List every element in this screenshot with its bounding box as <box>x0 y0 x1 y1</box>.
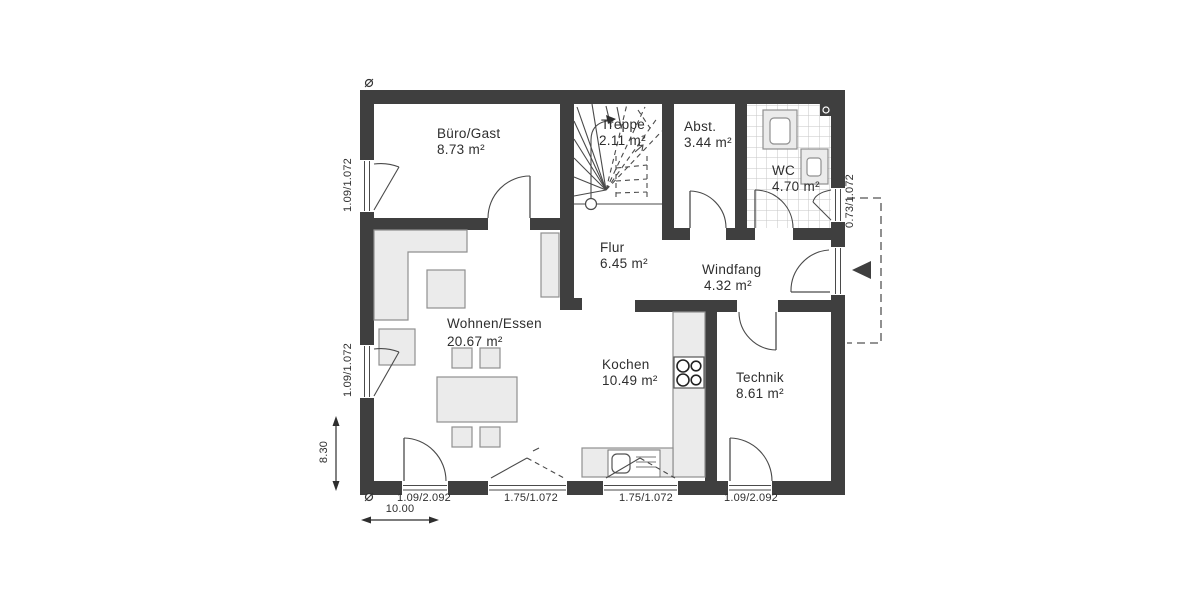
window-size-label: 0.73/1.072 <box>844 174 856 228</box>
room-area-wc: 4.70 m² <box>772 179 820 194</box>
kitchen-sink <box>608 450 660 477</box>
room-area-treppe: 2.11 m² <box>599 133 646 148</box>
door-size-label: 1.09/2.092 <box>397 492 451 504</box>
survey-point-icon <box>365 493 373 501</box>
coffee-table <box>427 270 465 308</box>
sideboard <box>541 233 559 297</box>
room-area-buero-gast: 8.73 m² <box>437 142 485 157</box>
chair <box>452 427 472 447</box>
room-label-buero-gast: Büro/Gast <box>437 126 500 141</box>
window-size-label: 1.75/1.072 <box>504 492 558 504</box>
chair <box>480 427 500 447</box>
room-area-flur: 6.45 m² <box>600 256 648 271</box>
kitchen-counter-vertical <box>673 312 705 477</box>
dining-table <box>437 377 517 422</box>
chair <box>480 348 500 368</box>
chair <box>452 348 472 368</box>
floor-plan-page: 8.30 10.00 1.09/1.072 1.09/1.072 0.73/1.… <box>0 0 1200 600</box>
dimension-width-label: 10.00 <box>386 503 415 515</box>
window-size-label: 1.09/1.072 <box>342 343 354 397</box>
window-size-label: 1.09/1.072 <box>342 158 354 212</box>
room-label-treppe: Treppe <box>601 117 645 132</box>
stair-newel-post <box>586 199 597 210</box>
door-size-label: 1.09/2.092 <box>724 492 778 504</box>
toilet <box>763 110 797 149</box>
armchair <box>379 329 415 365</box>
room-label-wc: WC <box>772 163 795 178</box>
wc-corner-drain <box>820 104 832 116</box>
survey-point-icon <box>365 79 373 87</box>
room-label-windfang: Windfang <box>702 262 761 277</box>
room-label-abstellraum: Abst. <box>684 119 716 134</box>
room-label-flur: Flur <box>600 240 625 255</box>
room-label-kochen: Kochen <box>602 357 650 372</box>
room-area-abstellraum: 3.44 m² <box>684 135 732 150</box>
dimension-depth-label: 8.30 <box>318 441 330 463</box>
room-area-kochen: 10.49 m² <box>602 373 658 388</box>
window-size-label: 1.75/1.072 <box>619 492 673 504</box>
floor-plan-svg: 8.30 10.00 1.09/1.072 1.09/1.072 0.73/1.… <box>0 0 1200 600</box>
room-label-wohnen-essen: Wohnen/Essen <box>447 316 542 331</box>
room-area-technik: 8.61 m² <box>736 386 784 401</box>
room-area-wohnen-essen: 20.67 m² <box>447 334 503 349</box>
cooktop <box>674 357 704 388</box>
room-area-windfang: 4.32 m² <box>704 278 752 293</box>
room-label-technik: Technik <box>736 370 784 385</box>
